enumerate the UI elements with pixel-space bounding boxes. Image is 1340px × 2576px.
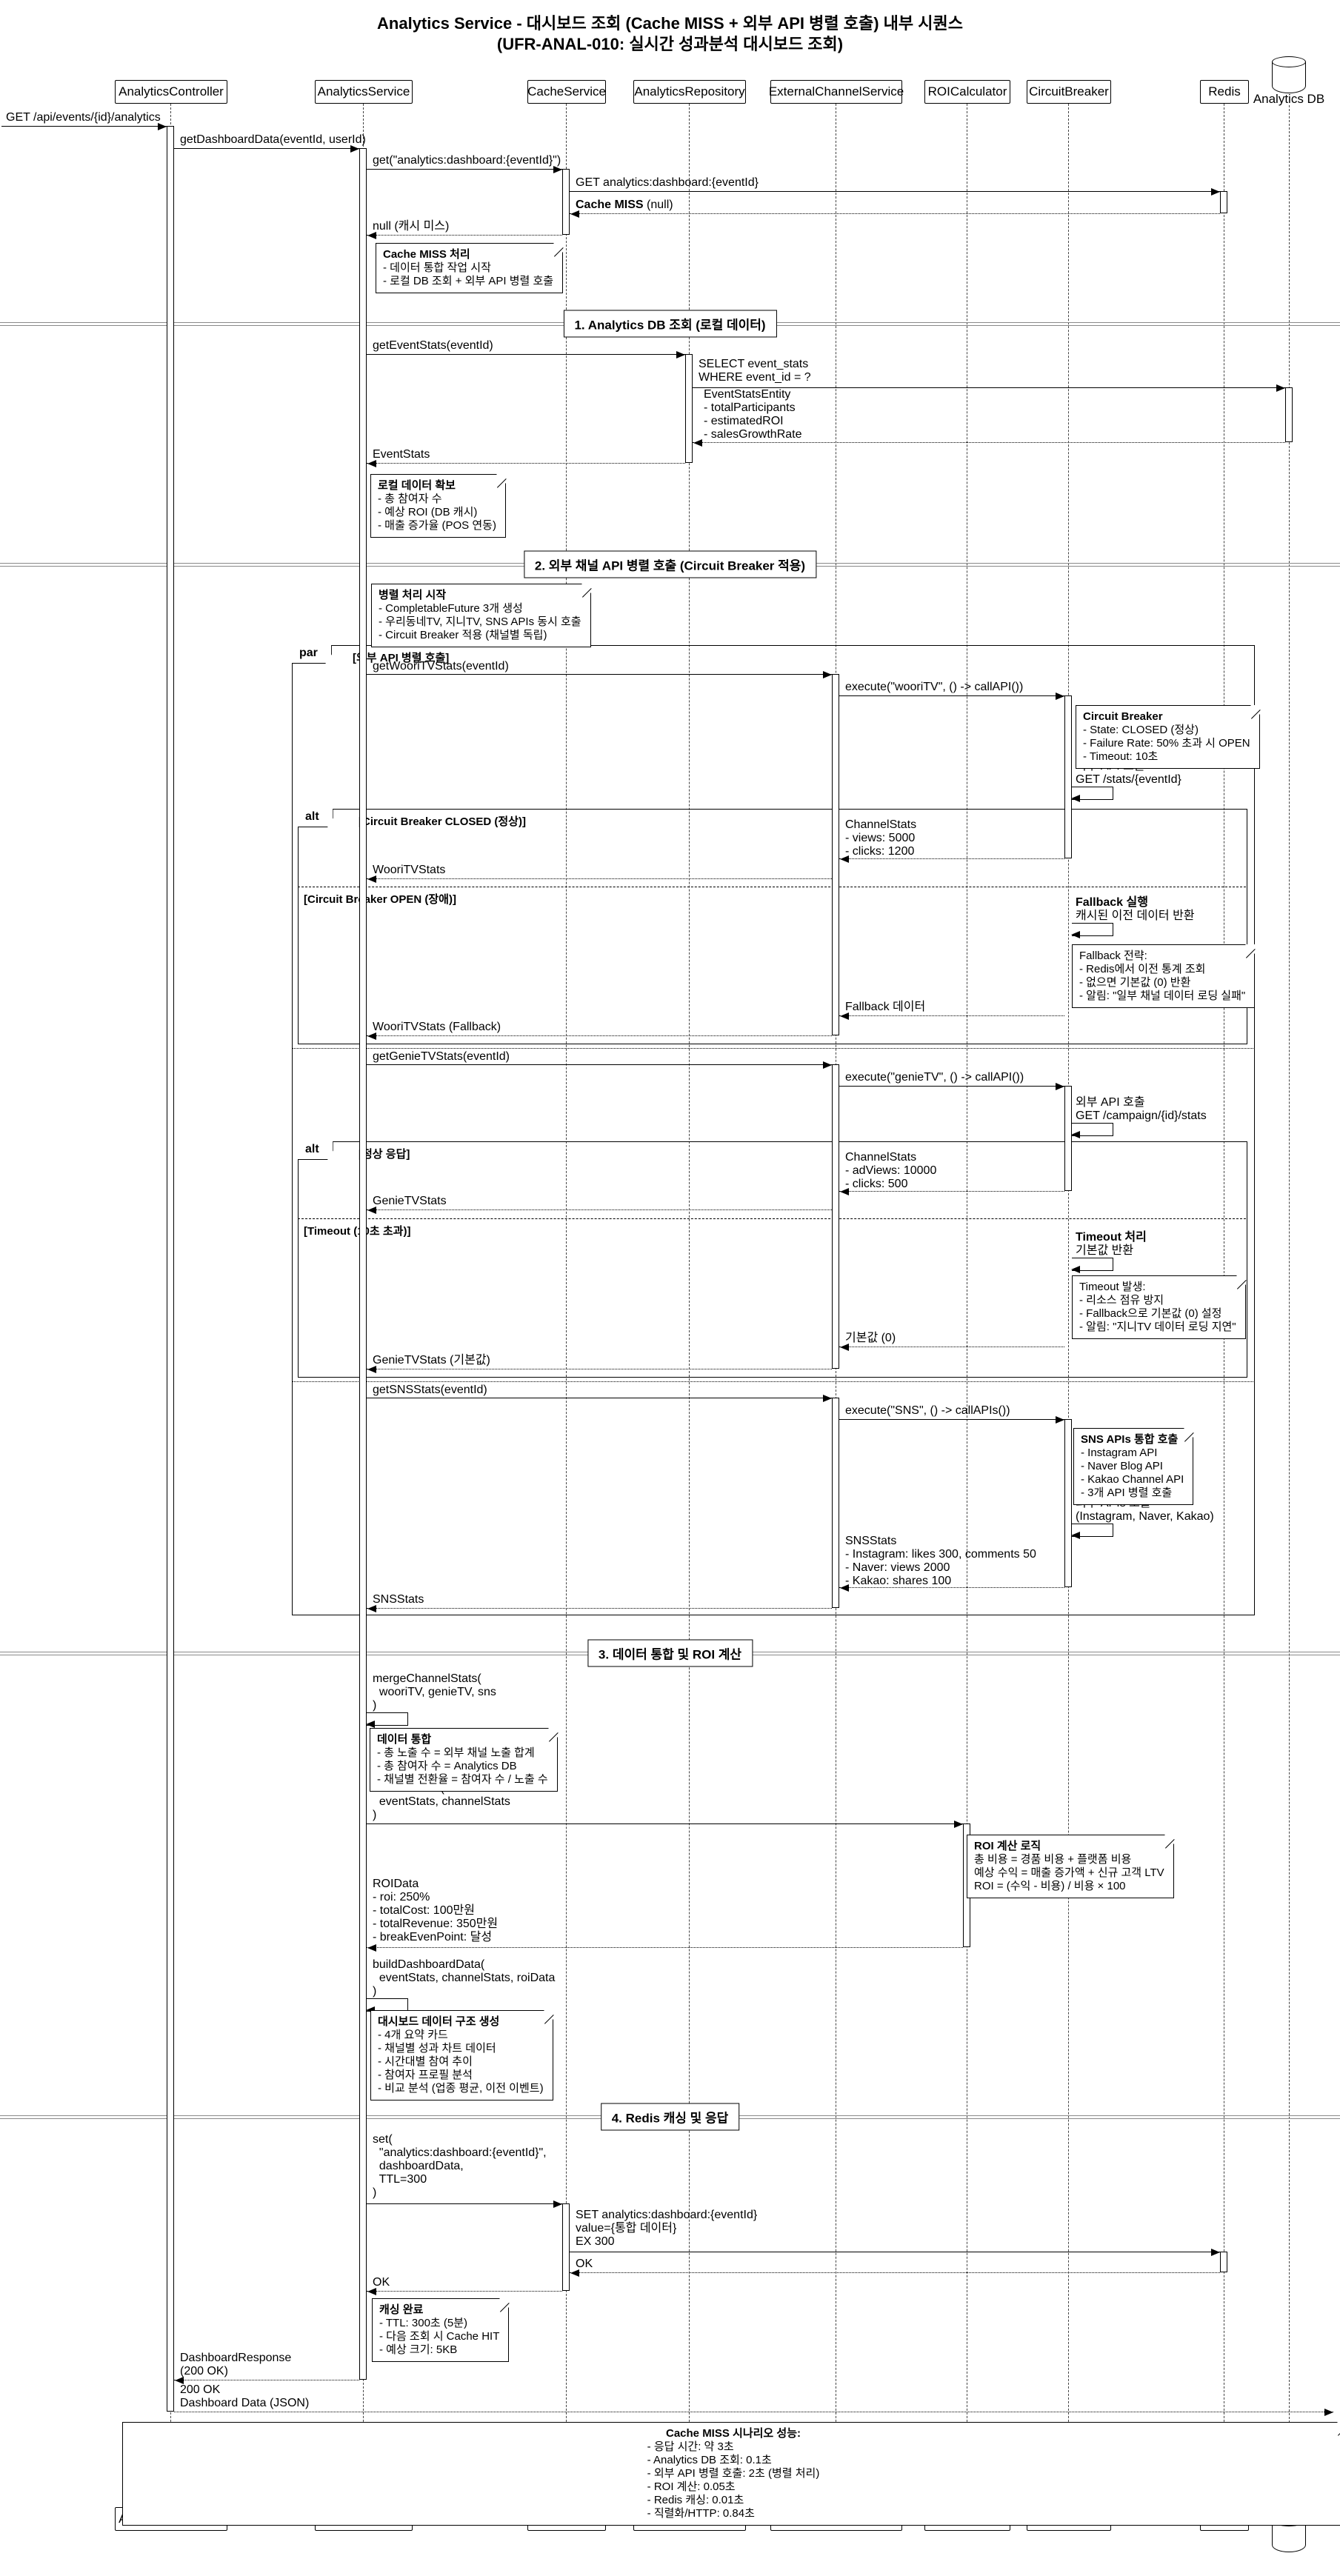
note-text: - Failure Rate: 50% 초과 시 OPEN [1083,737,1250,750]
message-line [1,126,167,127]
message-line [174,148,359,149]
message-label: GET analytics:dashboard:{eventId} [576,176,759,190]
arrowhead-icon [823,1395,832,1402]
database-icon-analytics-db-top [1272,56,1306,93]
note-text: - 3개 API 병렬 호출 [1081,1486,1184,1500]
message-label: SELECT event_statsWHERE event_id = ? [699,358,811,384]
message-text: EventStats [373,448,430,461]
section-divider-label: 2. 외부 채널 API 병렬 호출 (Circuit Breaker 적용) [524,551,816,578]
message-label: ChannelStats- views: 5000- clicks: 1200 [845,818,916,858]
note-text: - Analytics DB 조회: 0.1초 [647,2454,820,2467]
message-text: "analytics:dashboard:{eventId}", [373,2146,547,2160]
arrowhead-icon [1276,384,1285,392]
message-text: buildDashboardData( [373,1958,555,1972]
message-label: ROIData- roi: 250%- totalCost: 100만원- to… [373,1878,498,1944]
message-text: Fallback 데이터 [845,1001,925,1014]
self-message-label: Timeout 처리기본값 반환 [1076,1231,1147,1258]
message-label: getEventStats(eventId) [373,339,493,353]
message-text: DashboardResponse [180,2352,291,2365]
message-text: WooriTVStats [373,864,445,877]
participant-roi-calculator-top: ROICalculator [924,80,1010,104]
message-line [367,1823,963,1824]
arrowhead-icon [954,1821,963,1828]
message-text: 기본값 (0) [845,1332,896,1345]
note: SNS APIs 통합 호출- Instagram API- Naver Blo… [1073,1428,1193,1505]
activation-bar [562,2203,570,2291]
note-text: - 총 노출 수 = 외부 채널 노출 합계 [377,1746,548,1760]
activation-bar [832,674,839,1035]
activation-bar [167,126,174,2412]
message-text: getEventStats(eventId) [373,339,493,353]
diagram-title-line2: (UFR-ANAL-010: 실시간 성과분석 대시보드 조회) [0,34,1340,55]
arrowhead-icon [1071,1532,1080,1539]
message-text: getSNSStats(eventId) [373,1384,487,1397]
note-text: 총 비용 = 경품 비용 + 플랫폼 비용 [974,1853,1164,1866]
message-label: SNSStats- Instagram: likes 300, comments… [845,1535,1036,1588]
note-text: - 없으면 기본값 (0) 반환 [1079,976,1245,990]
note-text: ROI = (수익 - 비용) / 비용 × 100 [974,1880,1164,1893]
message-text: value={통합 데이터} [576,2222,757,2235]
activation-bar [1064,1086,1072,1191]
note-text: SNS APIs 통합 호출 [1081,1433,1184,1447]
message-text: ROIData [373,1878,498,1891]
note-text: Fallback 전략: [1079,950,1245,963]
note-text: - 알림: "일부 채널 데이터 로딩 실패" [1079,990,1245,1003]
arrowhead-icon [1211,188,1220,196]
lifeline-analytics-db [1289,105,1290,2515]
note-text: - 데이터 통합 작업 시작 [383,261,553,275]
return-message-line [367,463,685,464]
message-text: - totalCost: 100만원 [373,1904,498,1918]
message-label: set( "analytics:dashboard:{eventId}", da… [373,2133,547,2200]
return-message-line [367,1369,832,1369]
self-message-label: mergeChannelStats( wooriTV, genieTV, sns… [373,1672,496,1712]
participant-cache-service-top: CacheService [527,80,606,104]
message-text: EX 300 [576,2235,757,2249]
message-label: null (캐시 미스) [373,220,449,233]
note-text: - Kakao Channel API [1081,1473,1184,1486]
note-text: - TTL: 300초 (5분) [379,2317,499,2330]
note-text: - 응답 시간: 약 3초 [647,2440,820,2454]
message-text: get("analytics:dashboard:{eventId}") [373,154,561,167]
message-text: Dashboard Data (JSON) [180,2397,309,2410]
message-label: execute("wooriTV", () -> callAPI()) [845,681,1023,694]
message-text: - estimatedROI [704,415,802,428]
return-message-line [839,1015,1064,1016]
note-text: - State: CLOSED (정상) [1083,724,1250,737]
activation-bar [1064,1419,1072,1587]
message-label: DashboardResponse(200 OK) [180,2352,291,2378]
message-text: SET analytics:dashboard:{eventId} [576,2209,757,2222]
alt-separator [298,887,1246,887]
message-line [367,1398,832,1398]
note-text: - Redis 캐싱: 0.01초 [647,2494,820,2507]
message-line [367,169,562,170]
note-text: - 리소스 점유 방지 [1079,1294,1236,1307]
message-text: - breakEvenPoint: 달성 [373,1931,498,1944]
message-label: OK [373,2276,390,2289]
message-text: Cache MISS (null) [576,198,673,212]
note: Circuit Breaker- State: CLOSED (정상)- Fai… [1076,705,1260,769]
message-text: 200 OK [180,2383,309,2397]
message-line [367,674,832,675]
message-label: SNSStats [373,1593,424,1606]
message-text: - views: 5000 [845,832,916,845]
message-text: GET /api/events/{id}/analytics [6,111,161,124]
message-text: GET /campaign/{id}/stats [1076,1110,1207,1123]
note-text: - 우리동네TV, 지니TV, SNS APIs 동시 호출 [379,615,581,629]
note-text: - Naver Blog API [1081,1460,1184,1473]
message-label: GenieTVStats (기본값) [373,1354,490,1367]
message-text: null (캐시 미스) [373,220,449,233]
note-text: - Fallback으로 기본값 (0) 설정 [1079,1307,1236,1321]
return-message-line [570,213,1220,214]
message-label: EventStats [373,448,430,461]
message-label: OK [576,2258,593,2271]
message-line [570,191,1220,192]
note-text: - Circuit Breaker 적용 (채널별 독립) [379,629,581,642]
message-label: EventStatsEntity- totalParticipants- est… [704,388,802,441]
message-line [839,1419,1064,1420]
note-text: - Redis에서 이전 통계 조회 [1079,963,1245,976]
diagram-title-line1: Analytics Service - 대시보드 조회 (Cache MISS … [0,13,1340,34]
message-text: - Naver: views 2000 [845,1561,1036,1575]
message-text: - roi: 250% [373,1891,498,1904]
message-label: get("analytics:dashboard:{eventId}") [373,154,561,167]
activation-bar [1220,2252,1227,2272]
return-message-line [693,442,1285,443]
message-line [367,1064,832,1065]
message-line [367,354,685,355]
note-text: Circuit Breaker [1083,710,1250,724]
message-text: - Kakao: shares 100 [845,1575,1036,1588]
arrowhead-icon [367,1944,376,1952]
section-divider-label: 1. Analytics DB 조회 (로컬 데이터) [563,310,776,338]
message-text: Fallback 실행 [1076,896,1195,910]
note-text: 병렬 처리 시작 [379,589,581,602]
message-line [839,1086,1064,1087]
activation-bar [1064,695,1072,858]
participant-external-channel-service-top: ExternalChannelService [770,80,902,104]
note: ROI 계산 로직총 비용 = 경품 비용 + 플랫폼 비용예상 수익 = 매출… [967,1835,1174,1898]
return-message-line [367,1209,832,1210]
participant-analytics-controller-top: AnalyticsController [115,80,227,104]
return-message-line [174,2380,359,2380]
return-message-line [174,2412,1333,2412]
message-text: (Instagram, Naver, Kakao) [1076,1510,1214,1524]
return-message-line [367,1947,963,1948]
message-text: EventStatsEntity [704,388,802,401]
note-text: ROI 계산 로직 [974,1840,1164,1853]
message-text: 외부 API 호출 [1076,1096,1207,1110]
message-text: ) [373,2186,547,2200]
message-label: Cache MISS (null) [576,198,673,212]
self-message-label: buildDashboardData( eventStats, channelS… [373,1958,555,1998]
note: 캐싱 완료- TTL: 300초 (5분)- 다음 조회 시 Cache HIT… [372,2298,509,2362]
note: Cache MISS 처리- 데이터 통합 작업 시작- 로컬 DB 조회 + … [376,243,563,293]
message-label: getSNSStats(eventId) [373,1384,487,1397]
message-text: execute("wooriTV", () -> callAPI()) [845,681,1023,694]
alt-frame-label: alt [298,809,333,827]
message-text: wooriTV, genieTV, sns [373,1686,496,1699]
message-text: 기본값 반환 [1076,1244,1147,1258]
message-text: WHERE event_id = ? [699,371,811,384]
activation-bar [562,169,570,235]
note-text: - 4개 요약 카드 [378,2029,544,2042]
message-text: dashboardData, [373,2160,547,2173]
return-message-line [839,858,1064,859]
arrowhead-icon [1071,931,1080,938]
note-text: - 채널별 전환율 = 참여자 수 / 노출 수 [377,1773,548,1786]
message-text: eventStats, channelStats [373,1795,510,1809]
note-text: 로컬 데이터 확보 [378,479,496,493]
note: 데이터 통합- 총 노출 수 = 외부 채널 노출 합계- 총 참여자 수 = … [370,1728,558,1792]
activation-bar [1285,387,1293,442]
message-label: execute("genieTV", () -> callAPI()) [845,1071,1024,1084]
message-text: set( [373,2133,547,2146]
note-text: 캐싱 완료 [379,2303,499,2317]
note-text: 대시보드 데이터 구조 생성 [378,2015,544,2029]
message-text: GET /stats/{eventId} [1076,773,1181,787]
message-text: eventStats, channelStats, roiData [373,1972,555,1985]
message-text: ChannelStats [845,1151,936,1164]
section-divider-label: 3. 데이터 통합 및 ROI 계산 [587,1640,753,1667]
note: 대시보드 데이터 구조 생성- 4개 요약 카드- 채널별 성과 차트 데이터-… [370,2010,553,2100]
alt-else-condition: [Circuit Breaker OPEN (장애)] [304,891,456,907]
arrowhead-icon [1056,693,1064,700]
arrowhead-icon [1071,795,1080,802]
message-label: getGenieTVStats(eventId) [373,1050,510,1064]
arrowhead-icon [1071,1266,1080,1273]
note-text: - 외부 API 병렬 호출: 2초 (병렬 처리) [647,2467,820,2480]
message-text: - totalRevenue: 350만원 [373,1918,498,1931]
message-text: - totalParticipants [704,401,802,415]
arrowhead-icon [1324,2409,1333,2416]
note: Timeout 발생:- 리소스 점유 방지- Fallback으로 기본값 (… [1072,1275,1246,1339]
message-text: SNSStats [845,1535,1036,1548]
section-divider-label: 4. Redis 캐싱 및 응답 [601,2103,740,2131]
return-message-line [367,2291,562,2292]
participant-analytics-service-top: AnalyticsService [315,80,413,104]
par-separator [292,1048,1253,1049]
note-text: Cache MISS 처리 [383,248,553,261]
message-label: getWooriTVStats(eventId) [373,660,509,673]
alt-frame-label: alt [298,1141,333,1160]
note-text: - 알림: "지니TV 데이터 로딩 지연" [1079,1321,1236,1334]
activation-bar [359,148,367,2380]
note: Cache MISS 시나리오 성능:- 응답 시간: 약 3초- Analyt… [122,2422,1340,2526]
activation-bar [832,1398,839,1608]
message-label: Fallback 데이터 [845,1001,925,1014]
message-text: - adViews: 10000 [845,1164,936,1178]
message-text: getWooriTVStats(eventId) [373,660,509,673]
note: Fallback 전략:- Redis에서 이전 통계 조회- 없으면 기본값 … [1072,944,1255,1008]
arrowhead-icon [823,671,832,678]
message-label: 기본값 (0) [845,1332,896,1345]
note-text: Timeout 발생: [1079,1281,1236,1294]
message-label: 200 OKDashboard Data (JSON) [180,2383,309,2410]
par-frame-label: par [292,645,332,664]
message-text: GenieTVStats [373,1195,447,1208]
note-text: - 다음 조회 시 Cache HIT [379,2330,499,2343]
note-text: - CompletableFuture 3개 생성 [379,602,581,615]
note-text: - Instagram API [1081,1447,1184,1460]
message-text: ) [373,1985,555,1998]
return-message-line [367,1035,832,1036]
note-text: 예상 수익 = 매출 증가액 + 신규 고객 LTV [974,1866,1164,1880]
arrowhead-icon [1071,1131,1080,1138]
return-message-line [367,1608,832,1609]
note-text: - 총 참여자 수 = Analytics DB [377,1760,548,1773]
note: 로컬 데이터 확보- 총 참여자 수- 예상 ROI (DB 캐시)- 매출 증… [370,474,506,538]
message-label: execute("SNS", () -> callAPIs()) [845,1404,1010,1418]
message-text: - Instagram: likes 300, comments 50 [845,1548,1036,1561]
activation-bar [832,1064,839,1369]
participant-analytics-repository-top: AnalyticsRepository [633,80,746,104]
message-text: - clicks: 500 [845,1178,936,1191]
message-label: WooriTVStats (Fallback) [373,1021,501,1034]
arrowhead-icon [823,1061,832,1069]
message-text: mergeChannelStats( [373,1672,496,1686]
message-text: getDashboardData(eventId, userId) [180,133,366,147]
note-text: - 참여자 프로필 분석 [378,2069,544,2082]
return-message-line [839,1191,1064,1192]
message-label: getDashboardData(eventId, userId) [180,133,366,147]
sequence-diagram: Analytics Service - 대시보드 조회 (Cache MISS … [0,0,1340,2576]
arrowhead-icon [693,439,702,447]
message-text: OK [373,2276,390,2289]
note-text: - 시간대별 참여 추이 [378,2055,544,2069]
message-text: execute("SNS", () -> callAPIs()) [845,1404,1010,1418]
message-line [570,2252,1220,2252]
message-text: WooriTVStats (Fallback) [373,1021,501,1034]
arrowhead-icon [1056,1083,1064,1090]
self-message-label: 외부 API 호출GET /campaign/{id}/stats [1076,1096,1207,1123]
note: 병렬 처리 시작- CompletableFuture 3개 생성- 우리동네T… [371,584,591,647]
message-label: WooriTVStats [373,864,445,877]
arrowhead-icon [553,2200,562,2208]
participant-circuit-breaker-top: CircuitBreaker [1027,80,1111,104]
message-text: ) [373,1809,510,1822]
message-line [839,695,1064,696]
return-message-line [367,235,562,236]
participant-redis-top: Redis [1200,80,1249,104]
message-text: TTL=300 [373,2173,547,2186]
return-message-line [367,878,832,879]
par-separator [292,1381,1253,1382]
note-text: - 총 참여자 수 [378,493,496,506]
message-label: GET /api/events/{id}/analytics [6,111,161,124]
arrowhead-icon [1056,1416,1064,1424]
activation-bar [685,354,693,463]
note-text: - Timeout: 10초 [1083,750,1250,764]
message-text: SNSStats [373,1593,424,1606]
message-text: - salesGrowthRate [704,428,802,441]
note-text: - 비교 분석 (업종 평균, 이전 이벤트) [378,2082,544,2095]
message-text: OK [576,2258,593,2271]
note-text: 데이터 통합 [377,1733,548,1746]
message-text: Timeout 처리 [1076,1231,1147,1244]
alt-separator [298,1218,1246,1219]
note-text: Cache MISS 시나리오 성능: [647,2427,820,2440]
message-text: GET analytics:dashboard:{eventId} [576,176,759,190]
alt-condition: [Circuit Breaker CLOSED (정상)] [359,813,526,829]
message-text: GenieTVStats (기본값) [373,1354,490,1367]
note-text: - ROI 계산: 0.05초 [647,2480,820,2494]
message-text: SELECT event_stats [699,358,811,371]
self-message-label: Fallback 실행캐시된 이전 데이터 반환 [1076,896,1195,923]
message-text: execute("genieTV", () -> callAPI()) [845,1071,1024,1084]
return-message-line [570,2272,1220,2273]
message-label: SET analytics:dashboard:{eventId}value={… [576,2209,757,2249]
note-text: - 직렬화/HTTP: 0.84초 [647,2507,820,2520]
arrowhead-icon [676,351,685,358]
return-message-line [839,1347,1064,1347]
message-text: ChannelStats [845,818,916,832]
note-text: - 예상 ROI (DB 캐시) [378,506,496,519]
alt-else-condition: [Timeout (10초 초과)] [304,1223,410,1238]
message-line [367,2203,562,2204]
note-text: - 매출 증가율 (POS 연동) [378,519,496,533]
arrowhead-icon [1211,2249,1220,2256]
message-text: (200 OK) [180,2365,291,2378]
message-text: 캐시된 이전 데이터 반환 [1076,910,1195,923]
note-text: - 로컬 DB 조회 + 외부 API 병렬 호출 [383,275,553,288]
message-text: getGenieTVStats(eventId) [373,1050,510,1064]
activation-bar [1220,191,1227,213]
message-label: ChannelStats- adViews: 10000- clicks: 50… [845,1151,936,1191]
message-text: - clicks: 1200 [845,845,916,858]
message-label: GenieTVStats [373,1195,447,1208]
message-text: ) [373,1699,496,1712]
note-text: - 예상 크기: 5KB [379,2343,499,2357]
arrowhead-icon [366,1721,375,1728]
note-text: - 채널별 성과 차트 데이터 [378,2042,544,2055]
participant-label-analytics-db-top: Analytics DB [1253,92,1324,107]
